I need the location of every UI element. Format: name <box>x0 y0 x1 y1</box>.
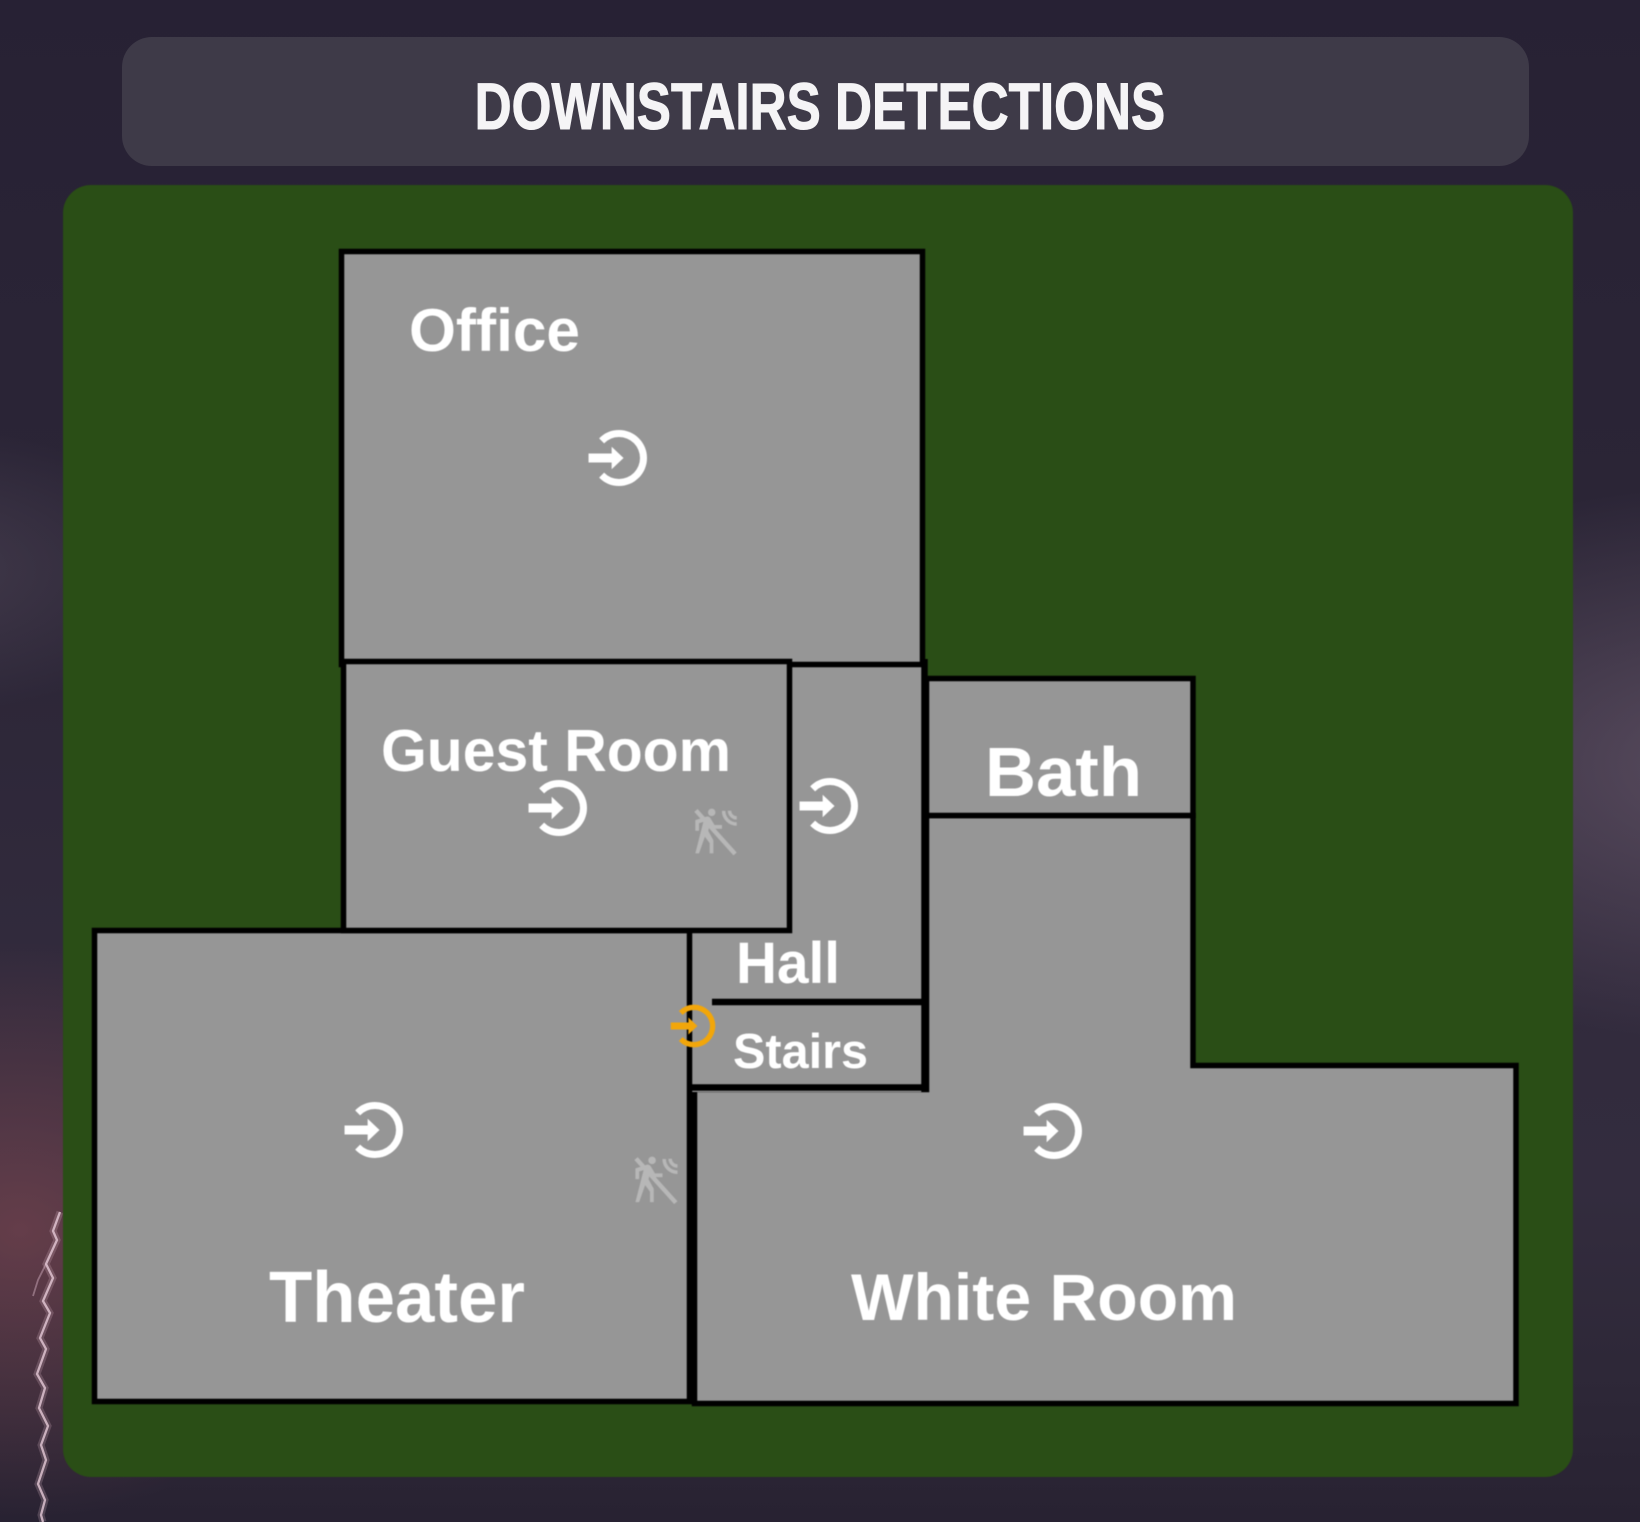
svg-text:Theater: Theater <box>269 1258 525 1338</box>
svg-text:White Room: White Room <box>851 1260 1237 1334</box>
svg-text:Stairs: Stairs <box>733 1025 868 1079</box>
svg-text:Office: Office <box>409 297 580 364</box>
svg-text:Guest Room: Guest Room <box>381 718 731 784</box>
svg-text:Bath: Bath <box>985 733 1142 811</box>
svg-text:Hall: Hall <box>736 931 840 996</box>
